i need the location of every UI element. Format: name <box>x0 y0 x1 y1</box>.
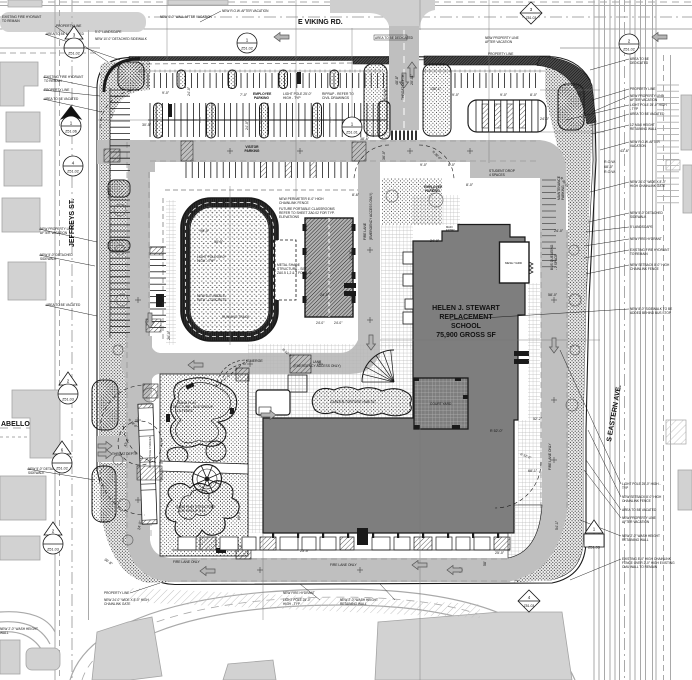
svg-text:25'-0": 25'-0" <box>300 549 310 553</box>
svg-text:(EMERGENCY ACCESS ONLY): (EMERGENCY ACCESS ONLY) <box>369 193 373 240</box>
svg-text:Z51.03: Z51.03 <box>62 398 74 402</box>
svg-text:AGE GROUP 5-12: AGE GROUP 5-12 <box>178 509 206 513</box>
svg-text:AFTER VACATION: AFTER VACATION <box>622 520 650 524</box>
svg-text:Z51.06: Z51.06 <box>65 130 77 134</box>
svg-text:24'-0": 24'-0" <box>540 117 550 121</box>
svg-text:HIGH - TYP: HIGH - TYP <box>283 96 301 100</box>
svg-text:Z51.03: Z51.03 <box>588 546 600 550</box>
svg-text:HELEN J. STEWART: HELEN J. STEWART <box>432 305 500 312</box>
svg-text:Z51.02: Z51.02 <box>67 170 79 174</box>
svg-text:24'-0": 24'-0" <box>320 293 330 297</box>
svg-text:AREA TO BE VACATED: AREA TO BE VACATED <box>622 508 657 512</box>
svg-text:24'-0": 24'-0" <box>430 187 440 191</box>
svg-text:26'-0": 26'-0" <box>167 330 171 340</box>
svg-text:NEW R.O.W. AFTER VACATION: NEW R.O.W. AFTER VACATION <box>222 9 269 13</box>
svg-text:ADDED BEHIND BUS STOP: ADDED BEHIND BUS STOP <box>630 311 671 315</box>
svg-text:36'-0": 36'-0" <box>382 150 386 160</box>
svg-text:54'-1": 54'-1" <box>555 520 559 530</box>
svg-text:5' LANDSCAPE: 5' LANDSCAPE <box>630 225 653 229</box>
svg-text:PARKING: PARKING <box>561 185 565 200</box>
svg-text:FIRE LANE: FIRE LANE <box>363 222 367 240</box>
svg-text:R.O.W.: R.O.W. <box>604 170 616 174</box>
svg-text:9'-0": 9'-0" <box>162 91 170 95</box>
svg-text:RETAINING WALL: RETAINING WALL <box>340 602 367 606</box>
svg-text:24'-0": 24'-0" <box>430 239 440 243</box>
svg-text:Z51.01: Z51.01 <box>346 131 358 135</box>
svg-text:FIRE LANE ONLY: FIRE LANE ONLY <box>173 560 200 564</box>
svg-text:9'-0": 9'-0" <box>452 93 460 97</box>
svg-text:Z51.03: Z51.03 <box>524 604 535 608</box>
svg-text:NEW 6'-0" WALL AFTER VACATION: NEW 6'-0" WALL AFTER VACATION <box>160 15 213 19</box>
svg-text:CHAINLINK FENCE: CHAINLINK FENCE <box>630 267 659 271</box>
svg-text:30'-5": 30'-5" <box>142 123 152 127</box>
svg-text:CHAINLINK FENCE: CHAINLINK FENCE <box>622 499 651 503</box>
svg-text:E VIKING RD.: E VIKING RD. <box>298 19 343 26</box>
svg-text:30'-5": 30'-5" <box>214 240 224 244</box>
svg-text:98'-0": 98'-0" <box>200 229 210 233</box>
svg-text:SIDEWALK: SIDEWALK <box>28 471 45 475</box>
svg-text:TO REMAIN: TO REMAIN <box>44 79 62 83</box>
svg-text:(EMERGENCY ACCESS ONLY): (EMERGENCY ACCESS ONLY) <box>293 364 340 368</box>
svg-text:Z51.03: Z51.03 <box>47 548 59 552</box>
svg-text:Z51.02: Z51.02 <box>56 467 68 471</box>
svg-text:20'-0": 20'-0" <box>349 250 353 260</box>
svg-text:TO REMAIN: TO REMAIN <box>630 252 648 256</box>
svg-text:43'-6": 43'-6" <box>620 149 630 153</box>
svg-text:AREA TO BE VACATED: AREA TO BE VACATED <box>44 97 79 101</box>
svg-text:20'-11": 20'-11" <box>410 73 414 85</box>
svg-text:75,900 GROSS SF: 75,900 GROSS SF <box>436 332 496 339</box>
svg-text:24'-0": 24'-0" <box>334 321 343 325</box>
svg-text:NEW FIRE HYDRANT: NEW FIRE HYDRANT <box>283 591 315 595</box>
svg-text:AREA TO BE VACATED: AREA TO BE VACATED <box>630 112 665 116</box>
svg-text:Z51.02: Z51.02 <box>241 47 253 51</box>
svg-text:26'-0": 26'-0" <box>237 510 241 520</box>
svg-text:COURT YARD: COURT YARD <box>430 402 452 406</box>
svg-text:8'-0": 8'-0" <box>448 163 456 167</box>
svg-text:PATH - CONCRETE: PATH - CONCRETE <box>197 298 228 302</box>
svg-text:AREA TO BE DEDICATED: AREA TO BE DEDICATED <box>375 36 414 40</box>
svg-text:MESH YARD: MESH YARD <box>505 261 522 265</box>
svg-text:CMU WALL TO REMAIN: CMU WALL TO REMAIN <box>622 565 658 569</box>
svg-text:24'-0": 24'-0" <box>554 229 564 233</box>
svg-text:JEFFREYS ST.: JEFFREYS ST. <box>69 199 76 247</box>
svg-text:58'-0": 58'-0" <box>548 293 558 297</box>
svg-text:Z51.02: Z51.02 <box>68 52 80 56</box>
svg-text:NEW 10'-0" DETACHED SIDEWALK: NEW 10'-0" DETACHED SIDEWALK <box>95 37 148 41</box>
svg-text:ZA0.5 1,2 & 3 FOR L.O.: ZA0.5 1,2 & 3 FOR L.O. <box>277 271 312 275</box>
svg-text:DEDICATED: DEDICATED <box>630 61 649 65</box>
svg-text:- TYP: - TYP <box>630 107 638 111</box>
svg-text:WALL: WALL <box>0 631 9 635</box>
svg-text:68'-0": 68'-0" <box>604 165 614 169</box>
svg-text:AFTER VACATION: AFTER VACATION <box>485 40 513 44</box>
svg-text:FIRE LANE ONLY: FIRE LANE ONLY <box>330 563 357 567</box>
svg-text:FIRE LANE ONLY: FIRE LANE ONLY <box>548 443 552 470</box>
svg-text:TYP: TYP <box>622 486 628 490</box>
svg-text:ELEVATIONS: ELEVATIONS <box>279 215 300 219</box>
svg-text:Z51.03: Z51.03 <box>526 16 537 20</box>
svg-text:4 SPACES: 4 SPACES <box>489 173 506 177</box>
svg-text:RETAINING WALL: RETAINING WALL <box>622 538 649 542</box>
svg-text:24'-0": 24'-0" <box>316 321 325 325</box>
svg-text:52'-2": 52'-2" <box>533 417 543 421</box>
svg-text:HIGH - TYP: HIGH - TYP <box>283 602 300 606</box>
svg-text:24'-0": 24'-0" <box>245 120 249 130</box>
svg-text:7'-0": 7'-0" <box>240 93 248 97</box>
svg-text:8'-0": 8'-0" <box>466 183 474 187</box>
svg-text:TO REMAIN: TO REMAIN <box>2 19 20 23</box>
svg-text:38'-6": 38'-6" <box>360 137 370 141</box>
svg-text:RUNNING TRACK: RUNNING TRACK <box>222 315 250 319</box>
svg-text:PARKING: PARKING <box>245 149 260 153</box>
svg-text:PARKING: PARKING <box>254 96 269 100</box>
svg-text:R 52'-0": R 52'-0" <box>490 429 503 433</box>
svg-text:9'-0": 9'-0" <box>420 163 428 167</box>
svg-text:- 2 SPACE: - 2 SPACE <box>554 254 558 270</box>
svg-text:R.O.W.: R.O.W. <box>604 160 616 164</box>
svg-text:9'-0": 9'-0" <box>500 93 508 97</box>
svg-text:AFTER VACATION: AFTER VACATION <box>630 98 658 102</box>
svg-text:(EMERGE: (EMERGE <box>246 359 263 363</box>
svg-text:PROPERTY LINE: PROPERTY LINE <box>104 591 129 595</box>
svg-text:CHAINLINK GATE: CHAINLINK GATE <box>104 602 130 606</box>
svg-text:48'-8": 48'-8" <box>395 75 399 85</box>
svg-text:130'-1": 130'-1" <box>430 87 442 91</box>
svg-text:SIDEWALK: SIDEWALK <box>630 215 647 219</box>
svg-text:5'-0" LANDSCAPE: 5'-0" LANDSCAPE <box>95 30 122 34</box>
svg-text:MOTORCYCLE 3 SPACES: MOTORCYCLE 3 SPACES <box>148 436 152 468</box>
svg-text:SCHOOL: SCHOOL <box>451 323 482 330</box>
svg-text:24'-0": 24'-0" <box>187 86 191 96</box>
svg-text:VACATION: VACATION <box>630 144 647 148</box>
svg-text:PROPERTY LINE: PROPERTY LINE <box>56 24 81 28</box>
svg-text:8'-0": 8'-0" <box>530 93 538 97</box>
svg-text:REPLACEMENT: REPLACEMENT <box>439 314 493 321</box>
svg-text:R.O.W.: R.O.W. <box>383 88 387 100</box>
svg-text:AREA TO BE VACATED: AREA TO BE VACATED <box>46 303 81 307</box>
svg-text:HIGH - TYP: HIGH - TYP <box>197 259 215 263</box>
svg-text:8'-6": 8'-6" <box>352 193 360 197</box>
svg-text:THROAT DEPTH: THROAT DEPTH <box>401 74 405 100</box>
svg-text:HIGH CHAINLINK GATE: HIGH CHAINLINK GATE <box>630 184 665 188</box>
svg-text:PROPERTY LINE: PROPERTY LINE <box>630 87 655 91</box>
svg-text:CIVIL DRAWINGS: CIVIL DRAWINGS <box>322 96 350 100</box>
svg-text:PROPERTY LINE: PROPERTY LINE <box>488 52 513 56</box>
svg-text:25'-0": 25'-0" <box>495 551 505 555</box>
svg-text:GARDEN TORTOISE HABITAT: GARDEN TORTOISE HABITAT <box>330 400 376 404</box>
svg-text:68'-1": 68'-1" <box>528 469 538 473</box>
svg-text:AFTER VACATION: AFTER VACATION <box>40 231 68 235</box>
svg-text:3-5 YEARS: 3-5 YEARS <box>176 409 194 413</box>
svg-text:ENTRY: ENTRY <box>446 228 455 232</box>
svg-text:RETAINING WALL: RETAINING WALL <box>630 127 657 131</box>
svg-text:Z51.02: Z51.02 <box>623 48 635 52</box>
svg-text:PROPERTY LINE: PROPERTY LINE <box>44 88 69 92</box>
svg-text:SIDEWALK: SIDEWALK <box>40 257 57 261</box>
svg-text:NEW FIRE HYDRANT: NEW FIRE HYDRANT <box>630 237 662 241</box>
svg-text:58': 58' <box>483 561 487 566</box>
svg-text:CHAINLINK FENCE: CHAINLINK FENCE <box>279 201 309 205</box>
